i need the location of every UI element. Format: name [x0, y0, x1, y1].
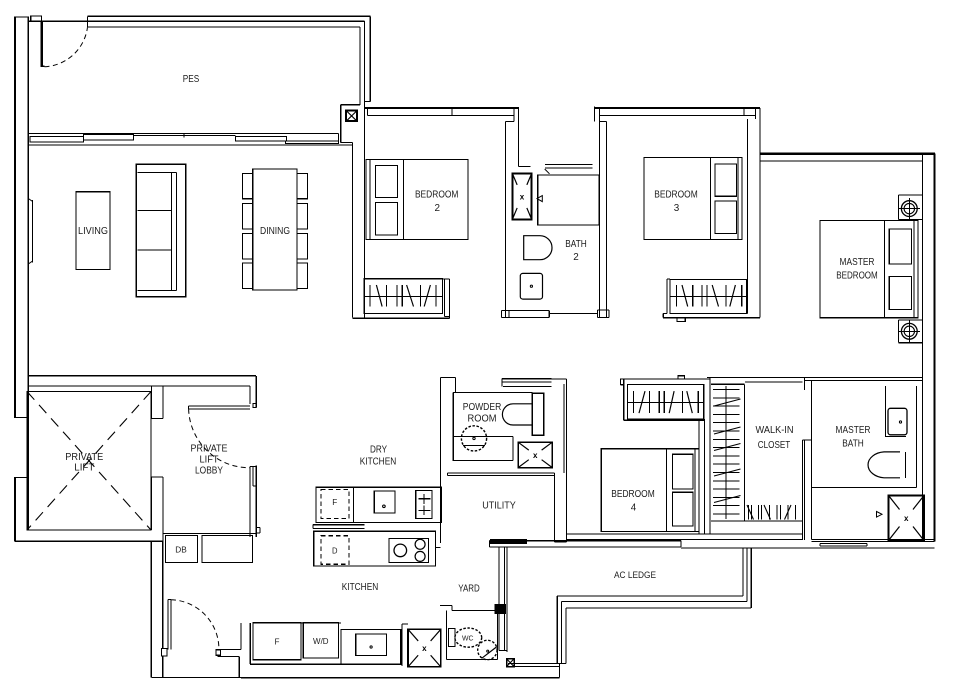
svg-text:x: x [422, 644, 427, 653]
svg-text:LIFT: LIFT [200, 455, 219, 466]
svg-text:POWDER: POWDER [463, 402, 502, 413]
svg-text:WC: WC [462, 634, 474, 643]
svg-text:DINING: DINING [260, 226, 290, 237]
svg-text:KITCHEN: KITCHEN [360, 457, 397, 468]
svg-text:BATH: BATH [565, 239, 587, 250]
svg-text:MASTER: MASTER [840, 257, 875, 268]
svg-text:x: x [904, 514, 909, 523]
svg-text:YARD: YARD [458, 584, 480, 595]
svg-text:KITCHEN: KITCHEN [342, 582, 379, 593]
svg-text:W/D: W/D [313, 637, 329, 646]
svg-text:F: F [332, 497, 337, 507]
svg-text:F: F [275, 637, 280, 647]
svg-text:DRY: DRY [370, 445, 387, 456]
svg-text:PES: PES [183, 74, 200, 85]
svg-text:BEDROOM: BEDROOM [611, 489, 655, 500]
svg-text:BEDROOM: BEDROOM [836, 271, 878, 282]
svg-text:ROOM: ROOM [468, 413, 497, 424]
svg-text:PRIVATE: PRIVATE [191, 444, 228, 455]
svg-text:BEDROOM: BEDROOM [415, 189, 459, 200]
svg-text:BATH: BATH [842, 439, 864, 450]
svg-text:x: x [520, 192, 525, 201]
svg-text:MASTER: MASTER [836, 425, 871, 436]
svg-text:D: D [332, 546, 338, 556]
svg-text:2: 2 [573, 252, 579, 263]
svg-text:DB: DB [175, 545, 187, 555]
svg-text:CLOSET: CLOSET [758, 440, 791, 451]
svg-text:AC LEDGE: AC LEDGE [614, 570, 656, 581]
svg-text:WALK-IN: WALK-IN [756, 425, 794, 436]
svg-text:x: x [533, 451, 538, 460]
svg-text:3: 3 [674, 203, 680, 214]
svg-text:BEDROOM: BEDROOM [654, 189, 698, 200]
svg-text:4: 4 [631, 503, 637, 514]
svg-text:2: 2 [435, 203, 441, 214]
svg-text:UTILITY: UTILITY [482, 501, 516, 512]
svg-text:LOBBY: LOBBY [195, 466, 223, 477]
svg-text:LIVING: LIVING [78, 226, 108, 237]
